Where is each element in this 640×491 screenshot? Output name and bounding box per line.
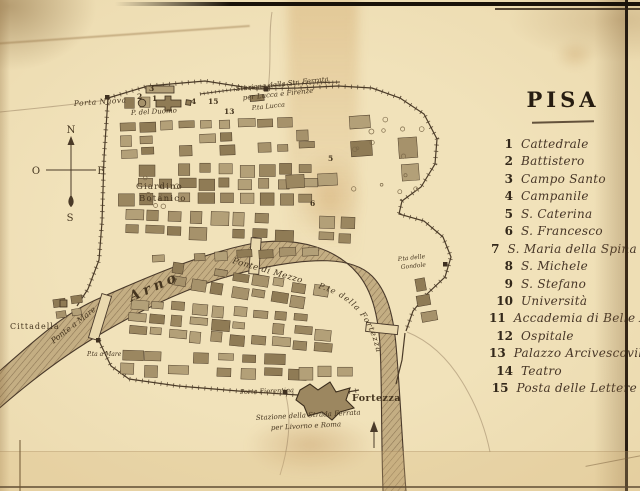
city-block — [231, 286, 249, 300]
city-block — [139, 165, 155, 176]
compass-west-label: O — [32, 166, 40, 177]
city-block — [190, 317, 208, 326]
label-gondole-line2: Gondole — [400, 261, 426, 271]
city-block — [128, 312, 146, 322]
city-block — [252, 289, 266, 298]
legend-item-number: 11 — [489, 311, 506, 325]
city-block — [314, 342, 332, 352]
tree-symbol — [161, 204, 166, 209]
label-station-south-line2: per Livorno e Roma — [271, 420, 342, 432]
city-block — [289, 295, 305, 309]
city-block — [171, 301, 185, 310]
city-block — [190, 211, 202, 224]
city-block — [140, 122, 156, 132]
legend-item-label: Cattedrale — [521, 137, 589, 151]
city-block — [192, 304, 208, 316]
legend-item-label: Ospitale — [521, 329, 574, 343]
city-block — [220, 145, 235, 155]
city-block — [240, 165, 255, 177]
city-block-zone — [120, 116, 315, 159]
city-block — [318, 173, 338, 186]
label-porta-lucca: P.ta Lucca — [250, 101, 285, 113]
city-block — [241, 368, 256, 379]
label-fortezza: Fortezza — [352, 393, 401, 404]
tree-symbol — [380, 183, 383, 186]
legend-item-number: 9 — [489, 277, 513, 291]
city-block — [168, 365, 189, 374]
city-block — [217, 368, 231, 377]
city-block — [252, 274, 270, 287]
label-cittadella: Cittadella — [10, 322, 60, 331]
city-block — [178, 164, 189, 176]
legend-item-label: S. Caterina — [521, 207, 592, 221]
paper-crease — [19, 440, 21, 491]
city-block — [260, 193, 274, 205]
city-block — [200, 163, 211, 172]
legend-item-number: 12 — [489, 329, 513, 343]
city-block — [237, 249, 252, 257]
city-block — [219, 120, 230, 129]
marker-2: 2 — [137, 92, 142, 101]
city-block — [118, 194, 134, 206]
city-block — [401, 164, 419, 182]
city-block — [257, 119, 272, 127]
tree-symbol — [352, 187, 356, 191]
tree-symbol — [419, 127, 424, 132]
compass-east-label: E — [97, 166, 104, 177]
label-piazza-del-duomo: P. del Duomo — [130, 107, 177, 117]
city-block — [349, 115, 370, 129]
city-block — [194, 253, 205, 261]
page-edge-right — [625, 0, 628, 491]
city-block — [264, 354, 285, 365]
city-block — [169, 329, 187, 339]
city-block — [240, 193, 254, 203]
city-block — [220, 133, 232, 142]
city-block — [210, 331, 222, 342]
city-block — [126, 209, 144, 220]
city-block — [211, 319, 230, 332]
city-block — [211, 211, 229, 225]
city-block — [415, 278, 427, 292]
river-flow-arrow — [370, 421, 378, 432]
marker-5: 5 — [328, 154, 333, 163]
city-block — [275, 230, 294, 242]
city-block — [193, 353, 208, 364]
legend-item-label: S. Michele — [521, 259, 588, 273]
city-block — [221, 193, 234, 203]
city-block — [264, 368, 282, 376]
city-block — [179, 145, 192, 156]
label-giardino-line1: Giardino — [136, 182, 183, 192]
city-block — [341, 217, 355, 229]
city-block — [302, 247, 318, 256]
city-block — [271, 291, 289, 304]
legend-item-number: 2 — [489, 154, 513, 168]
city-block — [299, 141, 315, 148]
page-left-shade — [0, 0, 10, 491]
page-gutter-shade — [594, 0, 626, 491]
city-block — [272, 336, 291, 346]
city-block — [280, 194, 293, 205]
scanned-map-page: N O E S Porta Nuova P. del Duomo Stazion… — [0, 0, 640, 491]
city-block — [233, 229, 245, 238]
city-block — [215, 251, 228, 261]
city-block — [144, 351, 161, 361]
city-block — [259, 249, 274, 258]
legend-item-number: 13 — [489, 346, 506, 360]
compass-north-label: N — [67, 125, 76, 136]
city-block — [121, 150, 137, 159]
legend-item-label: S. Stefano — [521, 277, 586, 291]
legend-item-number: 6 — [489, 224, 513, 238]
city-block-zone — [120, 349, 307, 383]
city-block — [150, 327, 162, 335]
title-rule — [532, 120, 594, 124]
legend-item-number: 5 — [489, 207, 513, 221]
city-block — [318, 366, 331, 377]
marker-4: 4 — [191, 97, 196, 106]
city-block — [160, 121, 172, 130]
marker-1: 1 — [152, 94, 157, 103]
city-block — [229, 335, 244, 347]
porta-a-mare-gate — [96, 338, 101, 343]
city-block — [200, 120, 211, 128]
compass-south-finial — [68, 195, 73, 207]
city-block — [416, 294, 431, 307]
city-block — [233, 322, 245, 329]
next-page-strip — [0, 451, 640, 491]
city-block — [212, 306, 224, 318]
marker-6: 6 — [310, 199, 315, 208]
city-block — [141, 147, 154, 154]
marker-3: 3 — [149, 84, 154, 93]
city-block — [189, 227, 207, 240]
country-roads — [0, 12, 490, 475]
city-block — [171, 315, 182, 327]
city-block — [299, 165, 311, 173]
city-block — [233, 273, 250, 283]
tree-symbol — [369, 129, 374, 134]
city-block — [280, 163, 292, 174]
legend-item-label: Teatro — [521, 364, 562, 378]
legend-item-number: 15 — [489, 381, 509, 395]
city-block — [126, 224, 139, 233]
city-block — [147, 210, 159, 221]
cittadella-tower — [60, 300, 67, 307]
city-block — [234, 306, 247, 316]
city-block — [260, 165, 276, 177]
city-block — [198, 193, 215, 204]
legend-item-number: 7 — [489, 242, 500, 256]
legend-item-label: Campanile — [521, 189, 589, 203]
legend-item-number: 3 — [489, 172, 513, 186]
city-block — [251, 335, 266, 345]
compass-rose: N O E S — [32, 125, 105, 224]
city-block — [242, 355, 255, 363]
city-block — [219, 178, 229, 187]
city-block — [152, 255, 164, 262]
city-block — [286, 174, 305, 188]
compass-south-label: S — [67, 213, 74, 224]
city-block — [277, 117, 292, 127]
city-block — [275, 311, 287, 320]
legend-item-number: 8 — [489, 259, 513, 273]
city-block — [293, 341, 307, 351]
city-block — [219, 353, 234, 360]
city-block — [319, 232, 334, 240]
city-block — [421, 310, 438, 322]
city-block — [338, 367, 353, 376]
city-block — [238, 180, 252, 190]
porta-delle-gondole-gate — [443, 262, 448, 267]
city-block — [120, 363, 134, 374]
city-block — [272, 323, 284, 334]
legend-item-label: S. Francesco — [521, 224, 603, 238]
city-block — [255, 213, 269, 223]
city-block — [179, 121, 195, 128]
city-block — [200, 134, 216, 143]
label-porta-nuova: Porta Nuova — [73, 95, 127, 108]
city-block — [350, 140, 372, 157]
page-edge-bottom — [0, 486, 640, 488]
city-block-zone — [125, 208, 355, 245]
compass-north-arrow — [68, 136, 75, 145]
city-block — [210, 282, 223, 295]
city-block — [146, 225, 165, 233]
city-block — [299, 367, 313, 380]
city-block — [277, 144, 288, 151]
city-block — [129, 325, 147, 334]
tree-symbol — [383, 117, 388, 122]
city-block — [219, 164, 232, 174]
city-block — [253, 228, 268, 237]
marker-15: 15 — [208, 97, 218, 106]
page-edge-top-secondary — [495, 8, 640, 10]
city-block — [279, 247, 296, 256]
legend-item-label: Battistero — [521, 154, 585, 168]
tree-symbol — [401, 127, 405, 131]
city-block-zone — [413, 277, 438, 323]
city-block — [123, 350, 144, 361]
city-block — [295, 325, 313, 334]
legend-item-number: 4 — [489, 189, 513, 203]
marker-13: 13 — [224, 107, 234, 116]
city-block — [294, 313, 308, 321]
tree-symbol — [382, 129, 386, 133]
city-block — [258, 143, 271, 153]
city-block-zone — [299, 366, 352, 380]
city-block — [140, 136, 153, 144]
city-block — [120, 136, 131, 147]
city-block — [191, 279, 207, 293]
city-block — [56, 310, 67, 318]
legend-item-number: 1 — [489, 137, 513, 151]
label-giardino-line2: Botanico — [139, 194, 187, 204]
city-block — [120, 123, 135, 132]
city-block — [253, 310, 268, 319]
legend-item-number: 14 — [489, 364, 513, 378]
city-block — [149, 314, 164, 324]
city-block — [319, 216, 335, 229]
label-station-south-line1: Stazione della Strada Ferrata — [256, 409, 361, 422]
city-block — [151, 301, 163, 309]
marker-7: 7 — [172, 277, 177, 286]
legend-item-label: Università — [521, 294, 587, 308]
page-edge-top — [115, 2, 640, 6]
city-block — [233, 212, 245, 226]
tree-symbol — [154, 204, 158, 208]
city-block — [144, 365, 157, 377]
city-block — [259, 178, 269, 188]
city-block — [199, 179, 215, 190]
city-block — [71, 295, 83, 304]
legend-item-number: 10 — [489, 294, 513, 308]
city-block — [339, 234, 351, 244]
city-block — [238, 118, 255, 127]
label-porta-a-mare: P.ta a Mare — [86, 351, 122, 358]
tree-symbol — [398, 190, 402, 194]
city-block — [189, 331, 201, 343]
city-block — [296, 130, 308, 141]
city-block-zone — [349, 112, 420, 185]
city-block — [168, 211, 181, 221]
city-block — [314, 329, 331, 341]
city-block — [398, 137, 418, 159]
city-block — [167, 226, 181, 235]
